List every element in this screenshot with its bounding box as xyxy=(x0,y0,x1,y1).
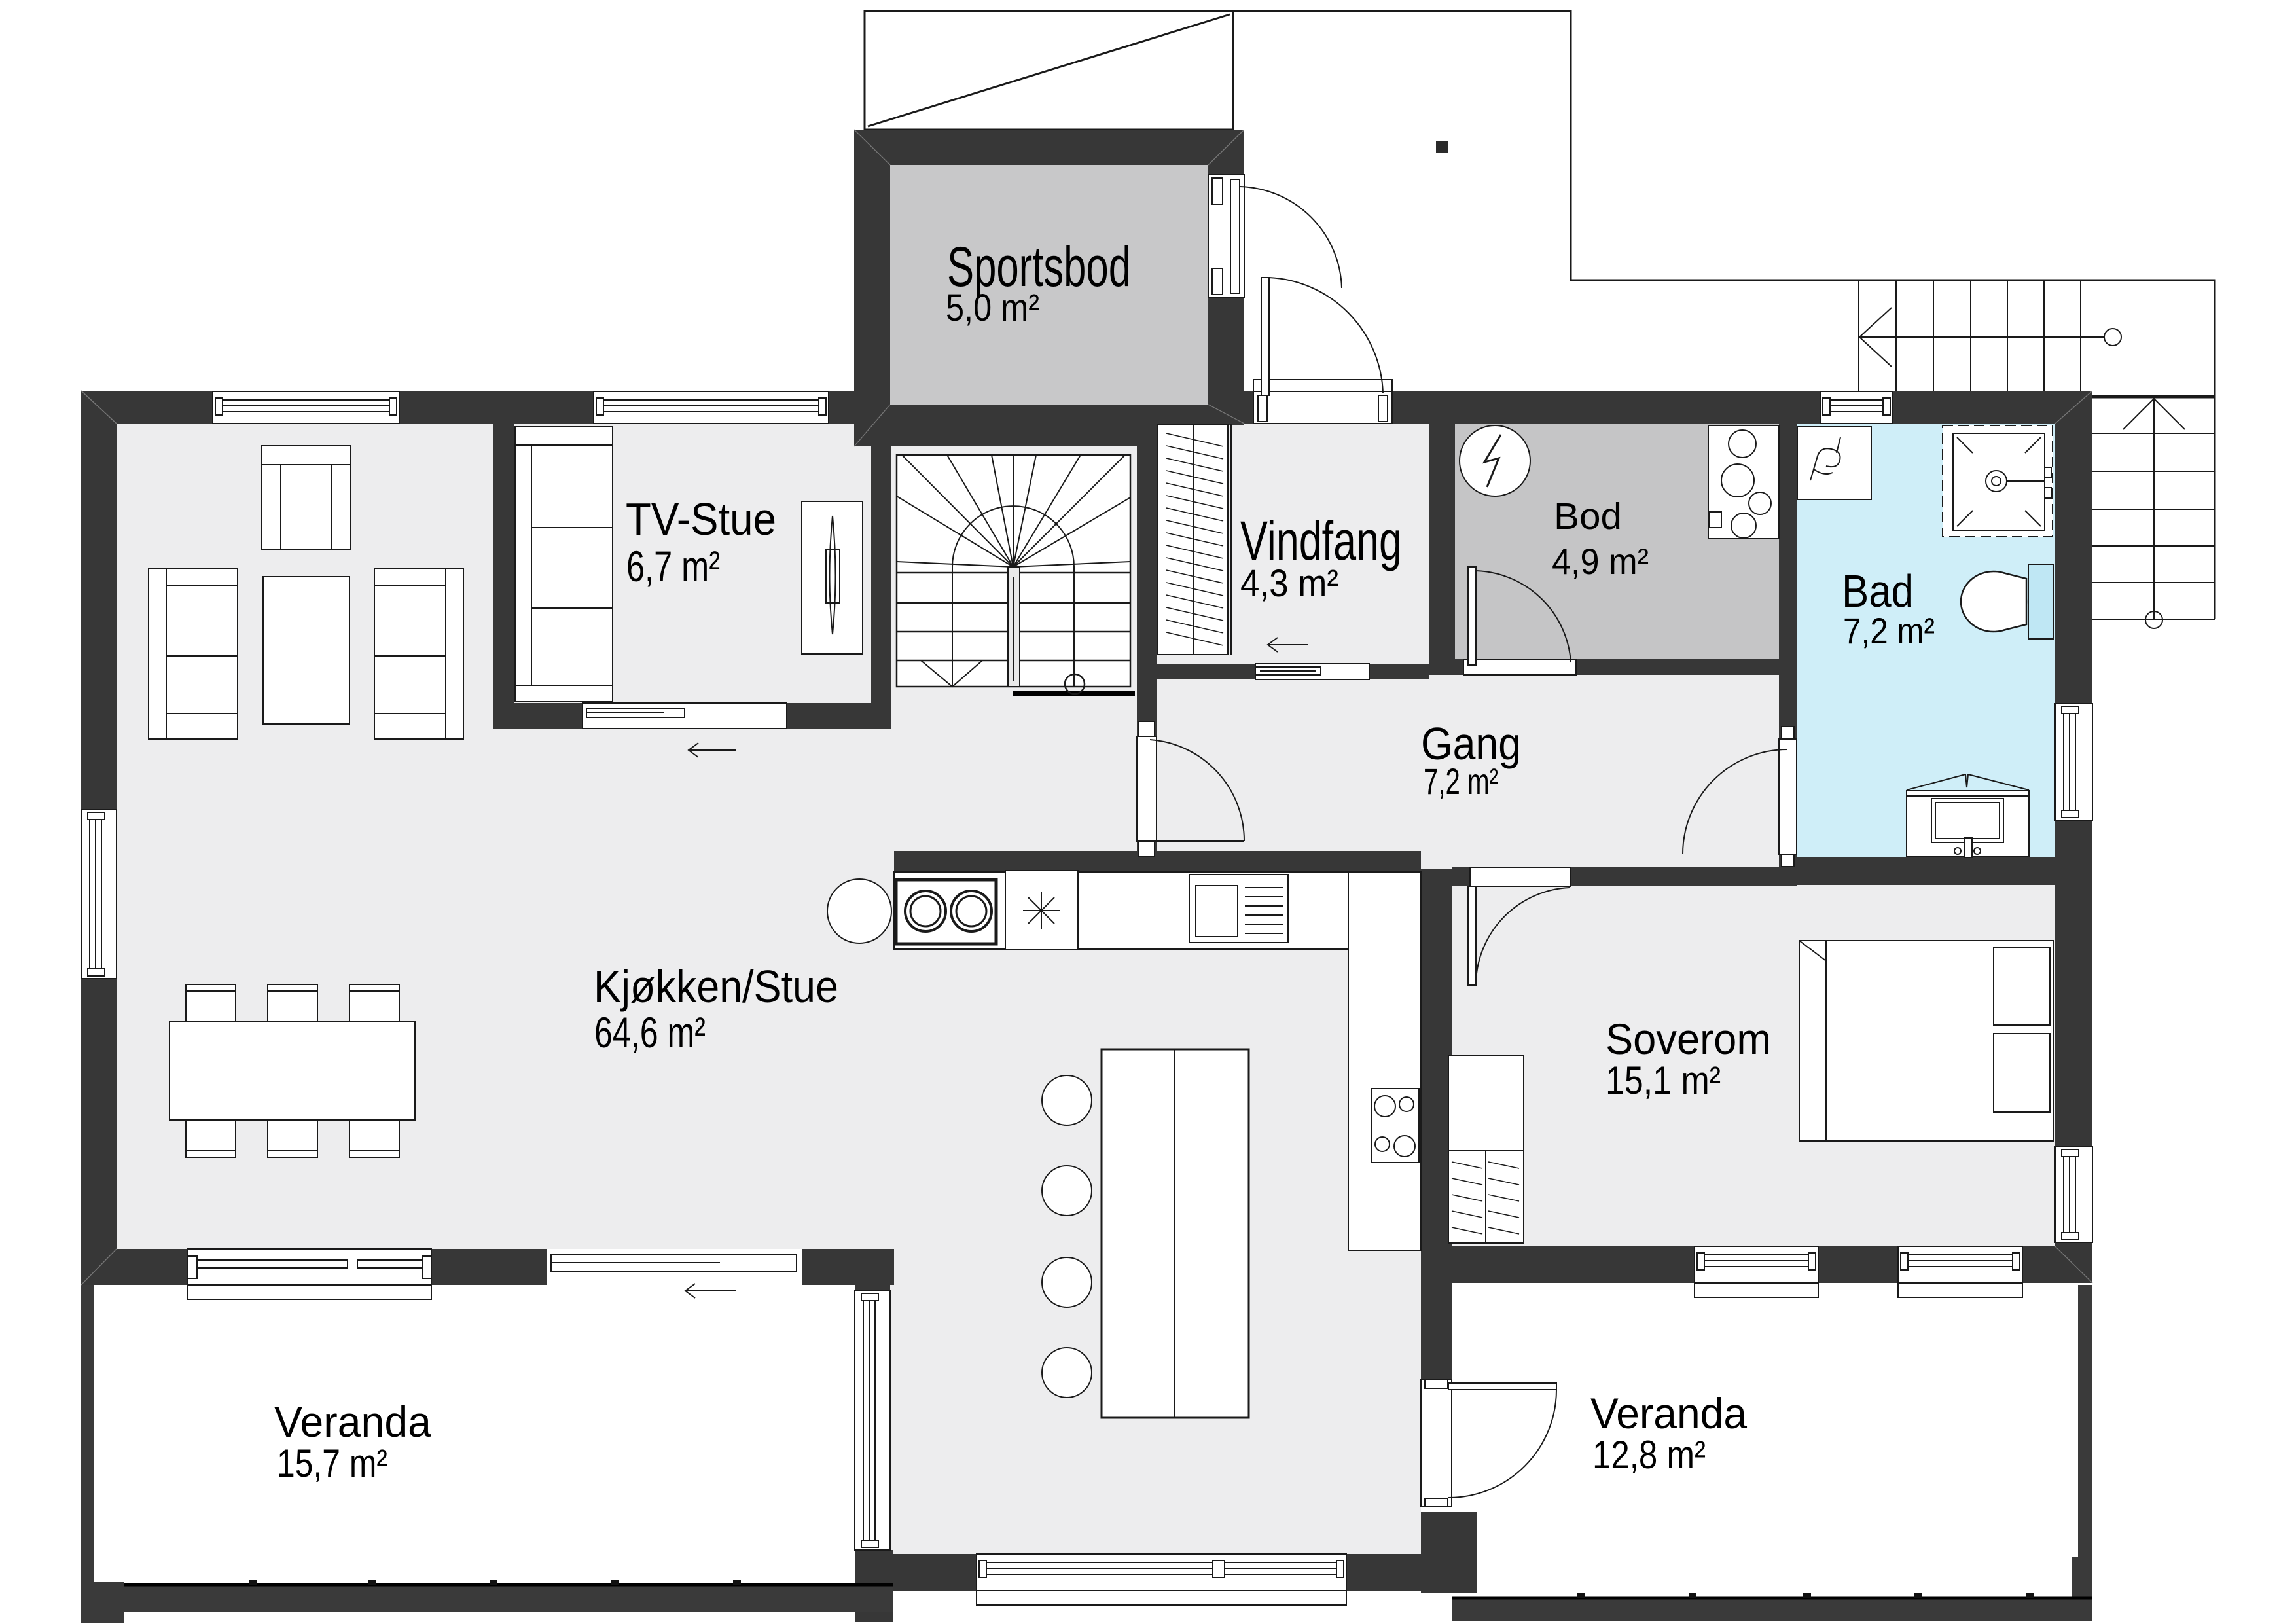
svg-text:Veranda: Veranda xyxy=(274,1398,431,1446)
svg-text:4,3 m²: 4,3 m² xyxy=(1240,562,1338,605)
svg-text:7,2 m²: 7,2 m² xyxy=(1843,610,1935,651)
svg-text:15,1 m²: 15,1 m² xyxy=(1605,1058,1721,1102)
svg-text:5,0 m²: 5,0 m² xyxy=(946,287,1039,329)
svg-text:15,7 m²: 15,7 m² xyxy=(277,1441,387,1485)
svg-text:Bod: Bod xyxy=(1554,496,1622,537)
svg-text:64,6 m²: 64,6 m² xyxy=(594,1008,706,1056)
svg-text:6,7 m²: 6,7 m² xyxy=(626,542,720,590)
svg-text:Bad: Bad xyxy=(1842,566,1914,617)
svg-text:4,9 m²: 4,9 m² xyxy=(1552,541,1649,582)
svg-text:Kjøkken/Stue: Kjøkken/Stue xyxy=(594,961,838,1012)
svg-text:Soverom: Soverom xyxy=(1605,1015,1771,1063)
svg-text:Veranda: Veranda xyxy=(1590,1389,1747,1437)
svg-text:7,2 m²: 7,2 m² xyxy=(1424,761,1498,802)
svg-text:TV-Stue: TV-Stue xyxy=(626,494,776,545)
svg-text:12,8 m²: 12,8 m² xyxy=(1592,1433,1706,1477)
